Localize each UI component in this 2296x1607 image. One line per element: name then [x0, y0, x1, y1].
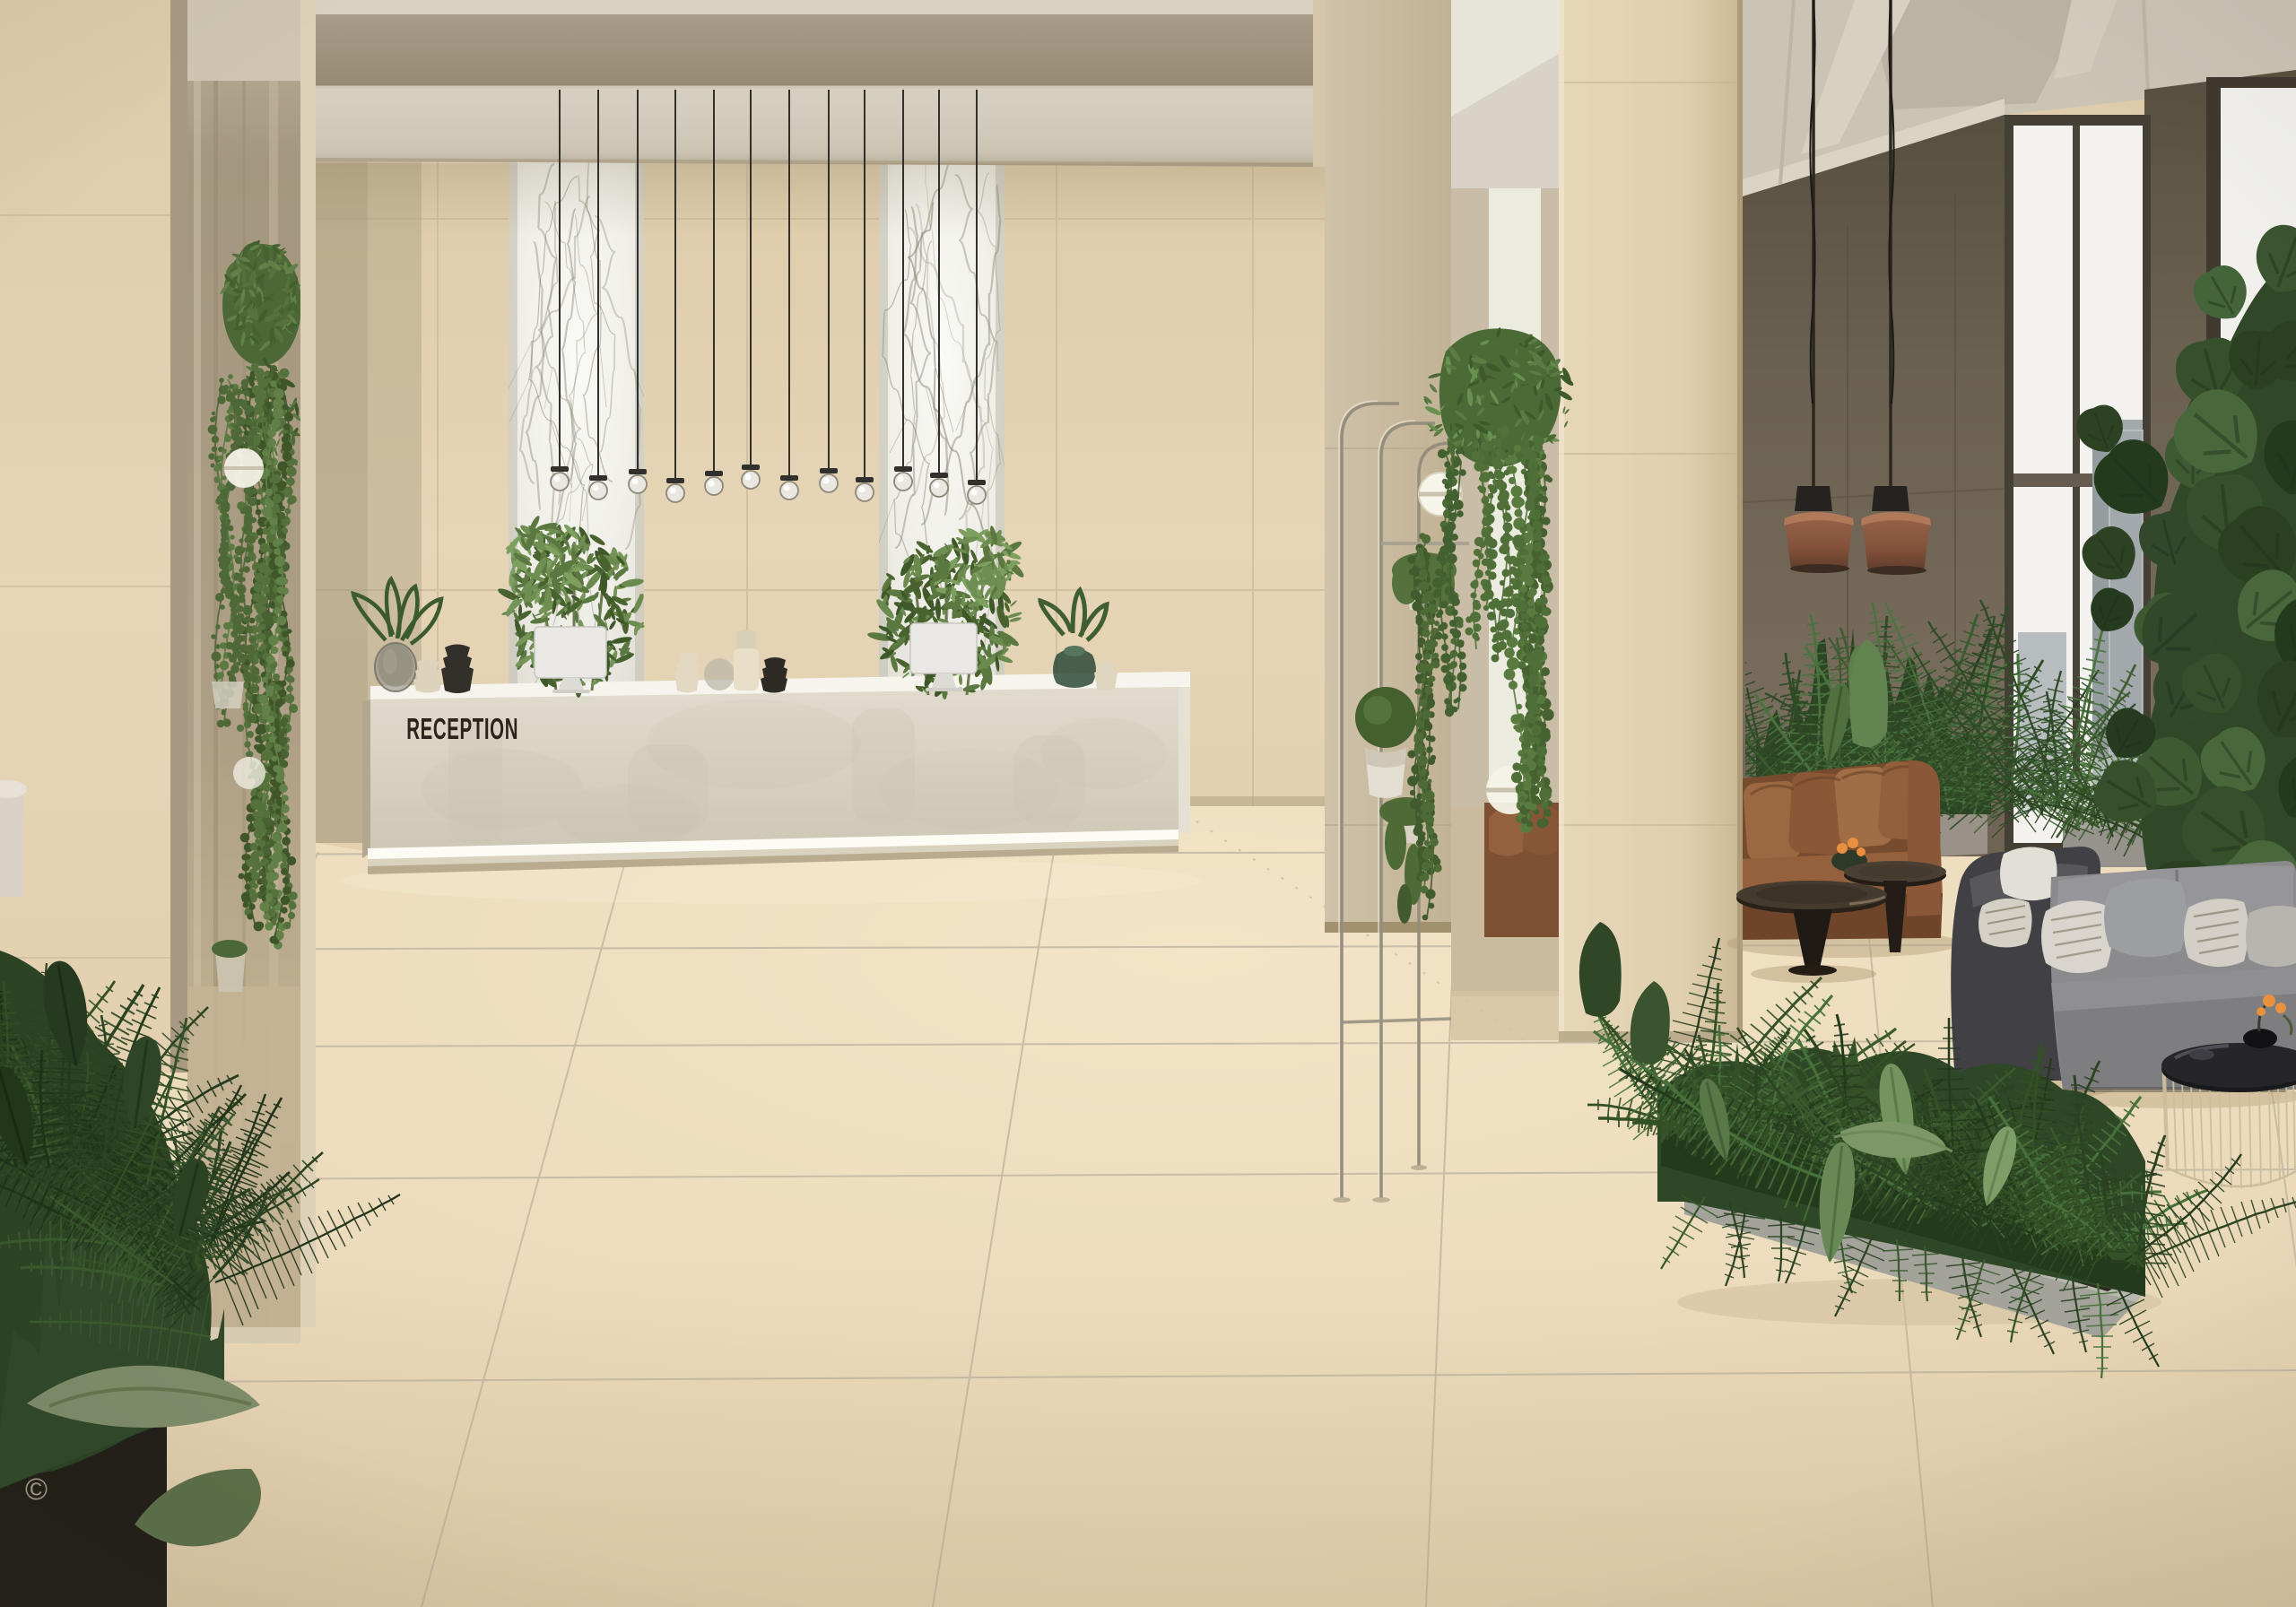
svg-text:©: ©: [25, 1472, 48, 1507]
